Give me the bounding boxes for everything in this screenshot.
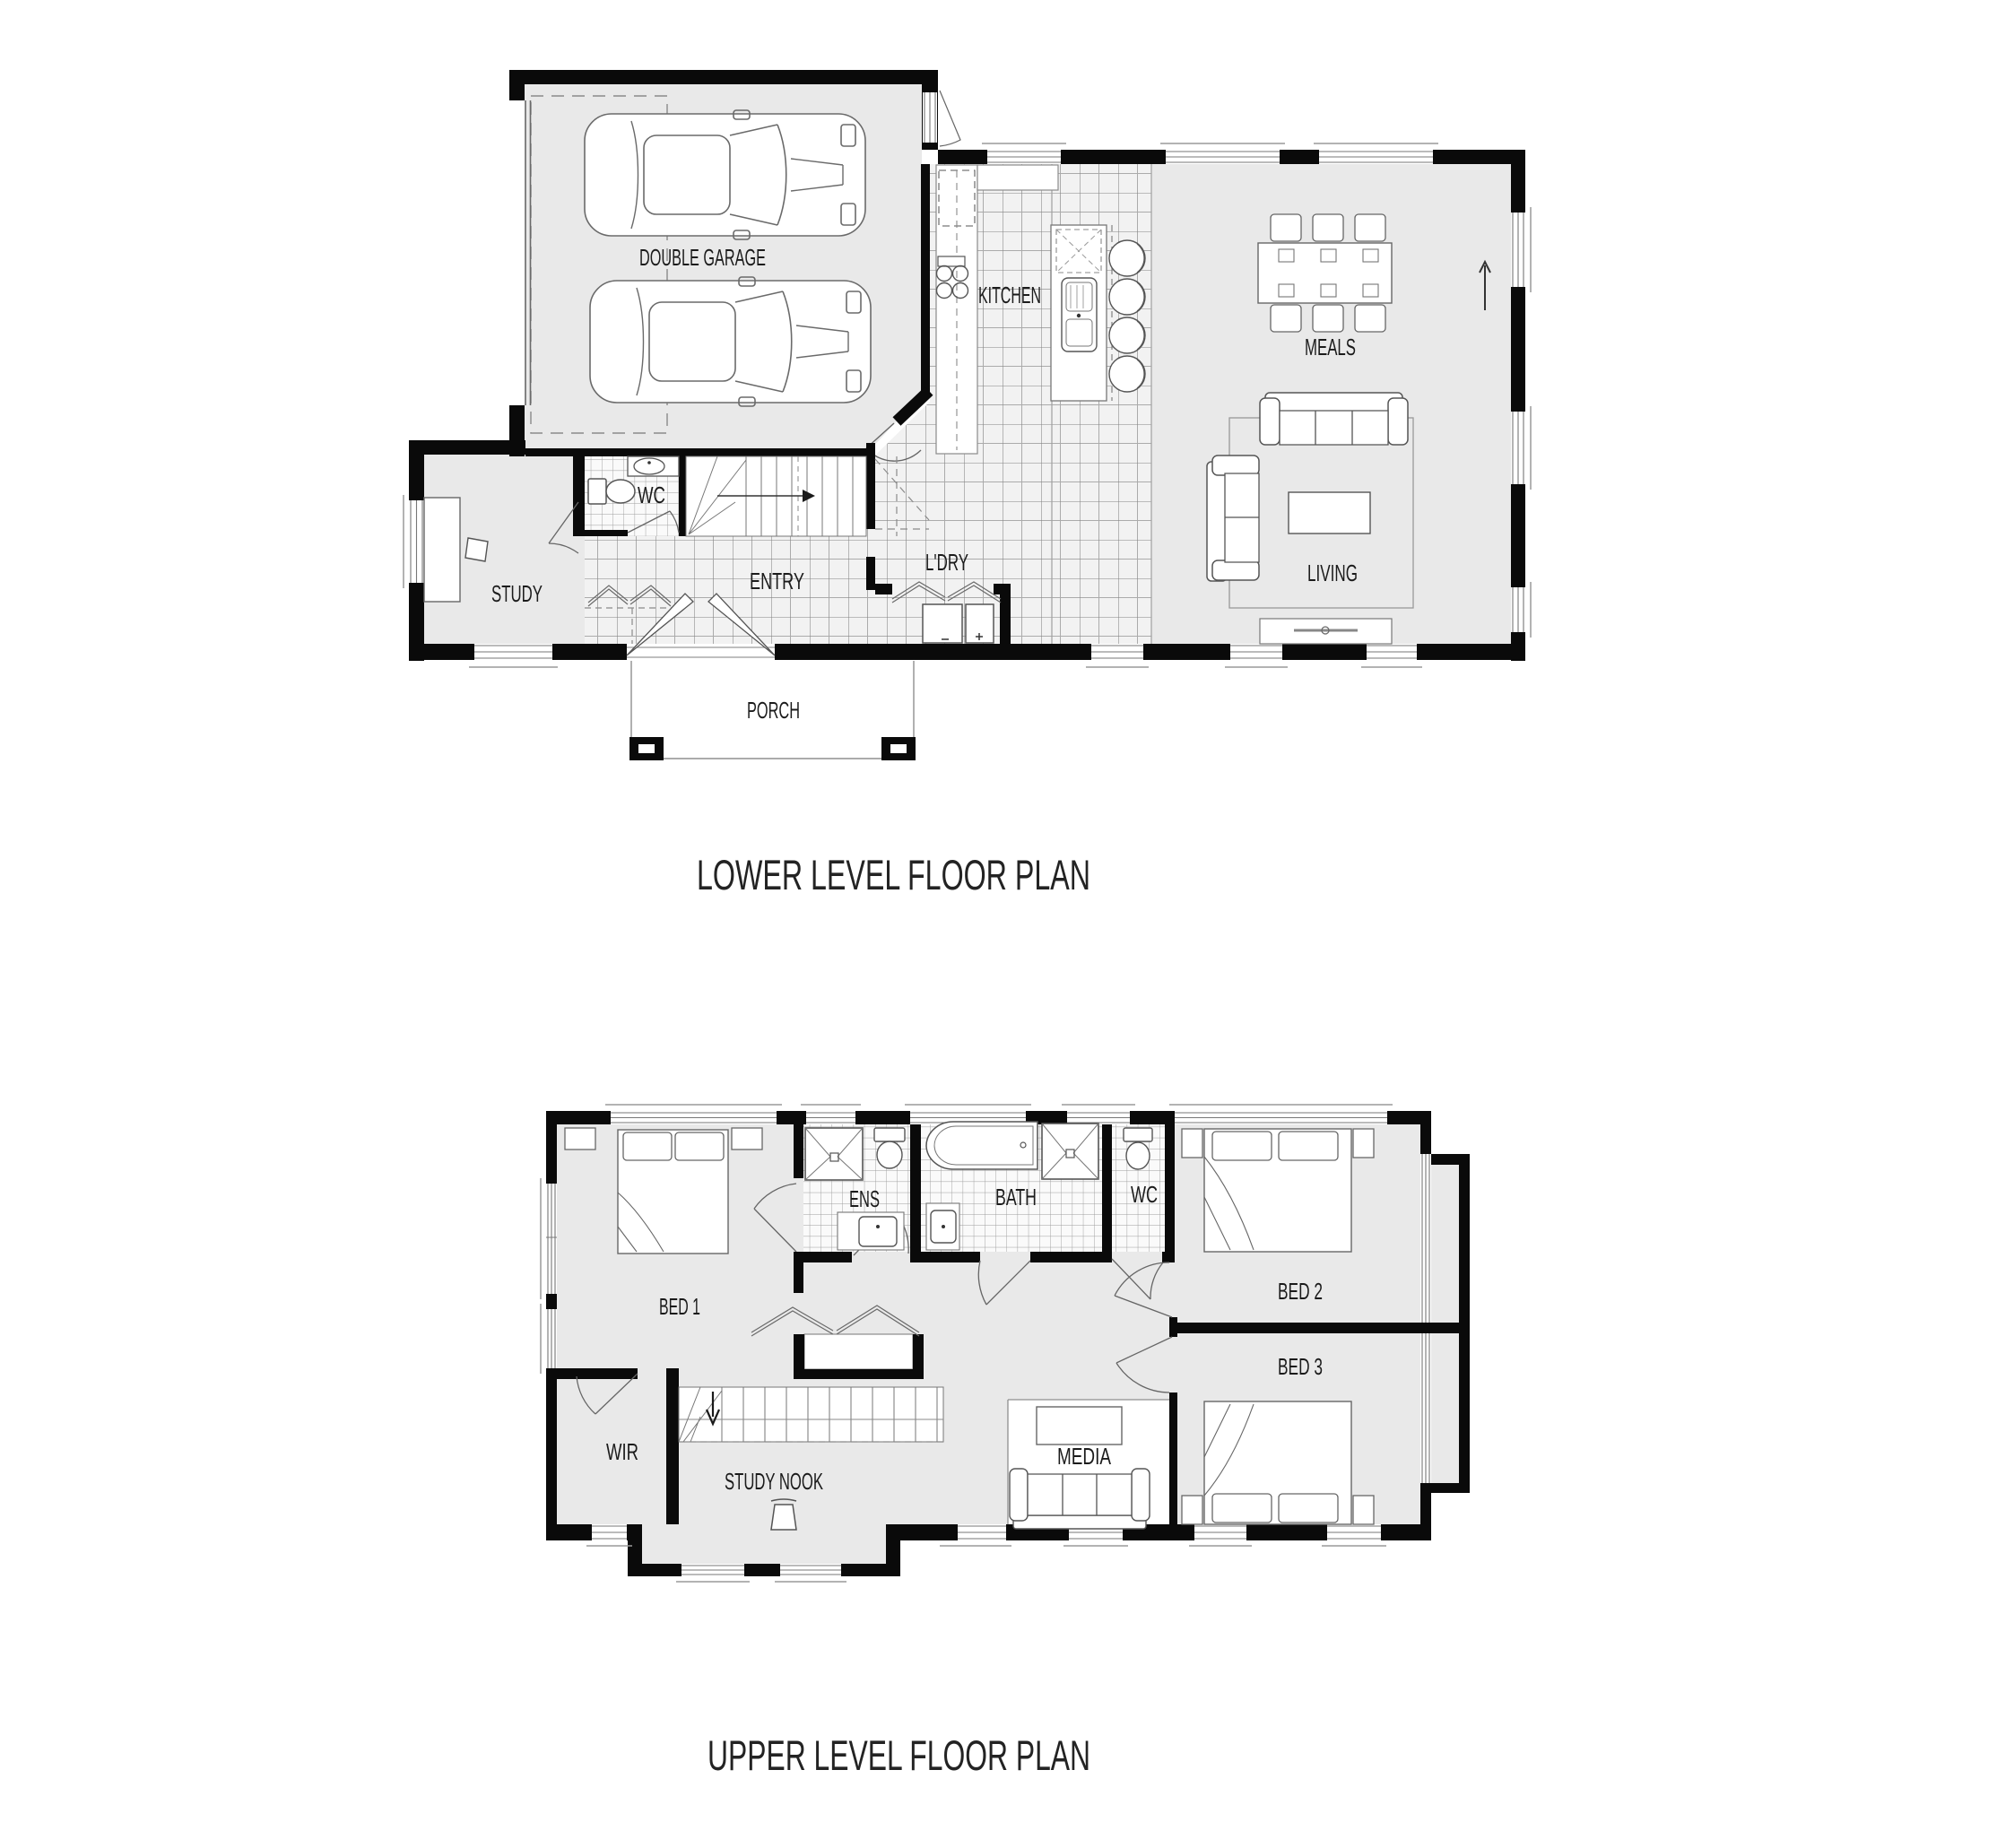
svg-text:WC: WC [638, 482, 665, 508]
svg-text:DOUBLE GARAGE: DOUBLE GARAGE [639, 244, 766, 271]
svg-text:BED 1: BED 1 [659, 1293, 700, 1320]
svg-text:MEALS: MEALS [1305, 334, 1356, 360]
svg-text:PORCH: PORCH [747, 697, 800, 724]
svg-text:MEDIA: MEDIA [1057, 1443, 1111, 1470]
svg-text:STUDY: STUDY [491, 580, 543, 607]
svg-text:BED 2: BED 2 [1278, 1278, 1323, 1305]
svg-text:L'DRY: L'DRY [925, 549, 968, 576]
svg-text:LOWER LEVEL FLOOR PLAN: LOWER LEVEL FLOOR PLAN [697, 851, 1090, 898]
svg-text:ENS: ENS [849, 1185, 880, 1212]
svg-text:LIVING: LIVING [1307, 560, 1358, 586]
svg-text:ENTRY: ENTRY [750, 568, 804, 594]
svg-text:WIR: WIR [606, 1438, 638, 1465]
svg-text:BATH: BATH [995, 1184, 1037, 1210]
svg-text:UPPER LEVEL FLOOR PLAN: UPPER LEVEL FLOOR PLAN [708, 1731, 1090, 1779]
svg-text:STUDY NOOK: STUDY NOOK [725, 1468, 823, 1495]
svg-text:KITCHEN: KITCHEN [978, 282, 1041, 308]
svg-text:BED 3: BED 3 [1278, 1353, 1323, 1380]
svg-text:WC: WC [1131, 1181, 1158, 1208]
